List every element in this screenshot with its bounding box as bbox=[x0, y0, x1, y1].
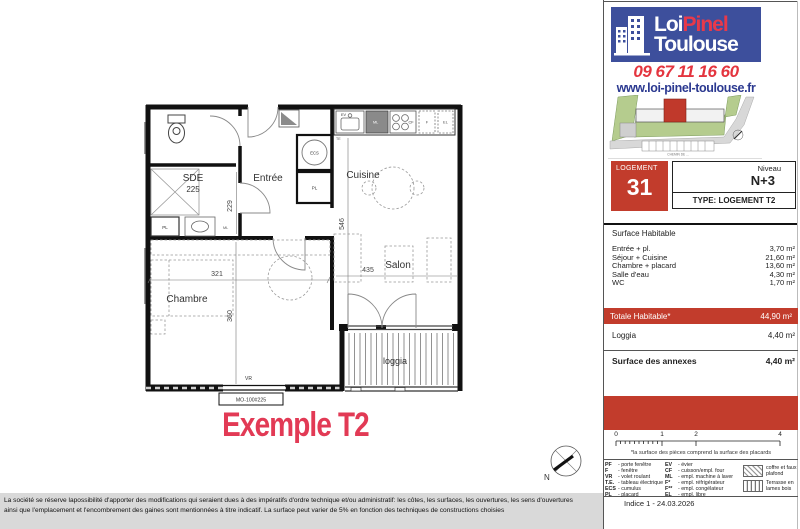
legend-swatch-row: Terrasse en lames bois bbox=[743, 480, 797, 492]
surface-row: WC1,70 m² bbox=[612, 279, 795, 288]
loggia-row: Loggia 4,40 m² bbox=[612, 331, 795, 340]
shaft bbox=[279, 110, 299, 127]
level-label: Niveau bbox=[673, 164, 781, 173]
door-gap bbox=[248, 102, 278, 111]
te-tag: TE bbox=[336, 137, 341, 141]
annexes-label: Surface des annexes bbox=[612, 356, 697, 366]
pl-tag: PL bbox=[312, 186, 318, 191]
scale-bar: 0 1 2 4 bbox=[610, 429, 792, 451]
surface-topline bbox=[604, 223, 797, 225]
legend-col-1: PF- porte fenêtre F- fenêtre VR- volet r… bbox=[605, 462, 665, 494]
red-banner bbox=[604, 396, 798, 430]
outer-walls bbox=[146, 105, 461, 391]
legend-abbr: PL bbox=[605, 492, 618, 498]
vr-tag: VR bbox=[245, 376, 252, 382]
plan-sheet: PL ML ECS PL TE bbox=[0, 0, 800, 529]
ev-tag: EV bbox=[341, 113, 347, 117]
ecs-tag: ECS bbox=[310, 151, 319, 156]
room-label-cuisine: Cuisine bbox=[346, 170, 380, 181]
hatch-swatch-icon bbox=[743, 465, 763, 477]
logo-word-toulouse: Toulouse bbox=[654, 33, 738, 56]
logo: LoiPinel Toulouse bbox=[611, 7, 761, 62]
unit-number-card: LOGEMENT 31 bbox=[611, 161, 668, 211]
disclaimer-line-2: ainsi que l'emplacement et l'encombremen… bbox=[4, 506, 599, 516]
surface-table: Surface Habitable Entrée + pl.3,70 m² Sé… bbox=[612, 229, 795, 288]
abbreviation-legend: PF- porte fenêtre F- fenêtre VR- volet r… bbox=[604, 459, 798, 497]
door-gap bbox=[236, 183, 244, 213]
surface-footnote: *la surface des pièces comprend la surfa… bbox=[604, 450, 798, 456]
legend-item: EL- empl. libre bbox=[665, 492, 741, 498]
disclaimer-footer: La société se réserve lapossibilité d'ap… bbox=[0, 493, 603, 529]
chambre-window bbox=[223, 383, 285, 393]
kitchen-counter bbox=[334, 109, 455, 135]
room-label-chambre: Chambre bbox=[166, 294, 208, 305]
legend-desc: - placard bbox=[618, 492, 639, 498]
sidebar-topline bbox=[603, 1, 798, 2]
unit-number: 31 bbox=[611, 174, 668, 201]
scale-tick-1: 1 bbox=[660, 431, 664, 438]
legend-item: PL- placard bbox=[605, 492, 665, 498]
annexes-value: 4,40 m² bbox=[766, 356, 795, 366]
road-label: CHEMIN DE ... bbox=[667, 153, 689, 157]
legend-swatch-row: coffre et faux plafond bbox=[743, 465, 797, 477]
ml-tag: ML bbox=[223, 226, 228, 230]
legend-abbr: EL bbox=[665, 492, 678, 498]
loggia-glazing bbox=[339, 294, 461, 331]
dim-229: 229 bbox=[227, 200, 234, 212]
toilet-icon bbox=[168, 115, 185, 143]
room-label-loggia: loggia bbox=[383, 356, 407, 366]
site-unit-highlight bbox=[664, 99, 686, 122]
swatch-label: Terrasse en lames bois bbox=[766, 480, 797, 492]
unit-box: LOGEMENT 31 Niveau N+3 TYPE: LOGEMENT T2 bbox=[611, 161, 796, 211]
logo-text: LoiPinel Toulouse bbox=[654, 15, 738, 55]
loggia-value: 4,40 m² bbox=[768, 331, 795, 340]
surface-row: Salle d'eau4,30 m² bbox=[612, 271, 795, 280]
site-map: CHEMIN DE ... bbox=[608, 95, 762, 159]
chambre-furniture bbox=[151, 240, 330, 334]
buildings-icon bbox=[613, 13, 651, 57]
scale-tick-0: 0 bbox=[614, 431, 618, 438]
sde-closet-label: PL bbox=[162, 225, 168, 230]
entry-closets bbox=[297, 135, 332, 203]
unit-details: Niveau N+3 TYPE: LOGEMENT T2 bbox=[672, 161, 796, 209]
level-value: N+3 bbox=[673, 173, 775, 188]
scale-tick-2: 2 bbox=[694, 431, 698, 438]
plan-caption: Exemple T2 bbox=[178, 406, 412, 445]
site-parking bbox=[642, 141, 714, 151]
total-habitable-bar: Totale Habitable* 44,90 m² bbox=[604, 308, 798, 324]
separator-line bbox=[604, 350, 798, 351]
north-label: N bbox=[544, 473, 550, 482]
scale-tick-4: 4 bbox=[778, 431, 782, 438]
slats-swatch-icon bbox=[743, 480, 763, 492]
unit-level-cell: Niveau N+3 bbox=[673, 162, 795, 193]
room-label-sde: SDE bbox=[183, 173, 204, 184]
website-link[interactable]: www.loi-pinel-toulouse.fr bbox=[603, 81, 769, 95]
ml-counter-tag: ML bbox=[373, 121, 378, 125]
el-tag: EL bbox=[443, 120, 449, 125]
surface-header: Surface Habitable bbox=[612, 229, 795, 238]
swatch-label: coffre et faux plafond bbox=[766, 465, 797, 477]
door-arcs bbox=[210, 107, 305, 270]
annexes-row: Surface des annexes 4,40 m² bbox=[612, 356, 795, 366]
room-label-entree: Entrée bbox=[253, 173, 283, 184]
dim-360: 360 bbox=[227, 310, 234, 322]
dim-321: 321 bbox=[211, 271, 223, 278]
cf-tag: CF bbox=[409, 121, 415, 125]
room-label-salon: Salon bbox=[385, 260, 411, 271]
legend-desc: - empl. libre bbox=[678, 492, 706, 498]
north-compass: N bbox=[533, 438, 593, 493]
unit-label: LOGEMENT bbox=[611, 161, 668, 172]
legend-col-2: EV- évier CF- cuisson/empl. four ML- emp… bbox=[665, 462, 741, 494]
surface-row-label: WC bbox=[612, 279, 625, 288]
loggia-label: Loggia bbox=[612, 331, 636, 340]
revision-index: Indice 1 - 24.03.2026 bbox=[624, 499, 694, 508]
dim-546: 546 bbox=[339, 218, 346, 230]
scale-ruler bbox=[616, 441, 780, 446]
door-gap bbox=[273, 234, 305, 242]
phone-number: 09 67 11 16 60 bbox=[611, 62, 761, 82]
disclaimer-line-1: La société se réserve lapossibilité d'ap… bbox=[4, 496, 599, 506]
surface-row-value: 1,70 m² bbox=[770, 279, 795, 288]
dim-435: 435 bbox=[362, 267, 374, 274]
legend-swatches: coffre et faux plafond Terrasse en lames… bbox=[741, 462, 797, 494]
window-ref: MO-100#225 bbox=[236, 398, 266, 404]
room-area-sde: 225 bbox=[186, 185, 200, 194]
unit-type: TYPE: LOGEMENT T2 bbox=[673, 193, 795, 205]
floor-plan: PL ML ECS PL TE bbox=[105, 88, 485, 413]
washbasin bbox=[185, 217, 215, 236]
total-label: Totale Habitable* bbox=[610, 312, 670, 321]
total-value: 44,90 m² bbox=[760, 312, 792, 321]
